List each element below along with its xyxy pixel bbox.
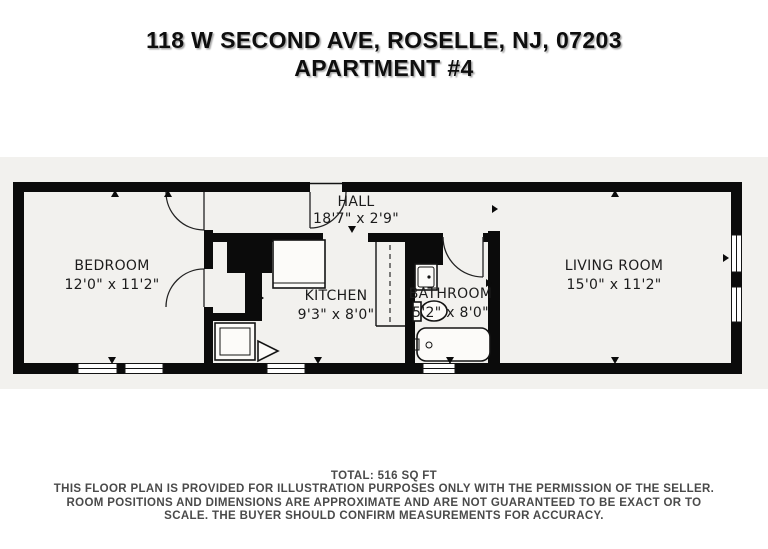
room-dimensions: 5'2" x 8'0" <box>383 304 518 323</box>
room-name: BEDROOM <box>22 257 202 276</box>
kitchen-cabinet-door <box>258 341 278 361</box>
bedroom-door <box>166 192 204 230</box>
room-label-bedroom: BEDROOM 12'0" x 11'2" <box>22 257 202 295</box>
room-name: BATHROOM <box>383 285 518 304</box>
bathroom-door <box>443 237 483 277</box>
room-dimensions: 18'7" x 2'9" <box>276 211 436 228</box>
room-dimensions: 15'0" x 11'2" <box>524 276 704 295</box>
floorplan-page: 118 W SECOND AVE, ROSELLE, NJ, 07203 APA… <box>0 0 768 549</box>
kitchen-stove <box>215 323 255 360</box>
room-name: LIVING ROOM <box>524 257 704 276</box>
room-dimensions: 12'0" x 11'2" <box>22 276 202 295</box>
bathtub <box>414 328 490 361</box>
room-name: HALL <box>276 194 436 211</box>
room-label-living-room: LIVING ROOM 15'0" x 11'2" <box>524 257 704 295</box>
room-label-hall: HALL 18'7" x 2'9" <box>276 194 436 227</box>
total-area: TOTAL: 516 SQ FT <box>0 470 768 483</box>
kitchen-counter <box>273 240 325 288</box>
room-label-bathroom: BATHROOM 5'2" x 8'0" <box>383 285 518 323</box>
footer: TOTAL: 516 SQ FT THIS FLOOR PLAN IS PROV… <box>0 470 768 524</box>
disclaimer-text: THIS FLOOR PLAN IS PROVIDED FOR ILLUSTRA… <box>46 483 722 523</box>
